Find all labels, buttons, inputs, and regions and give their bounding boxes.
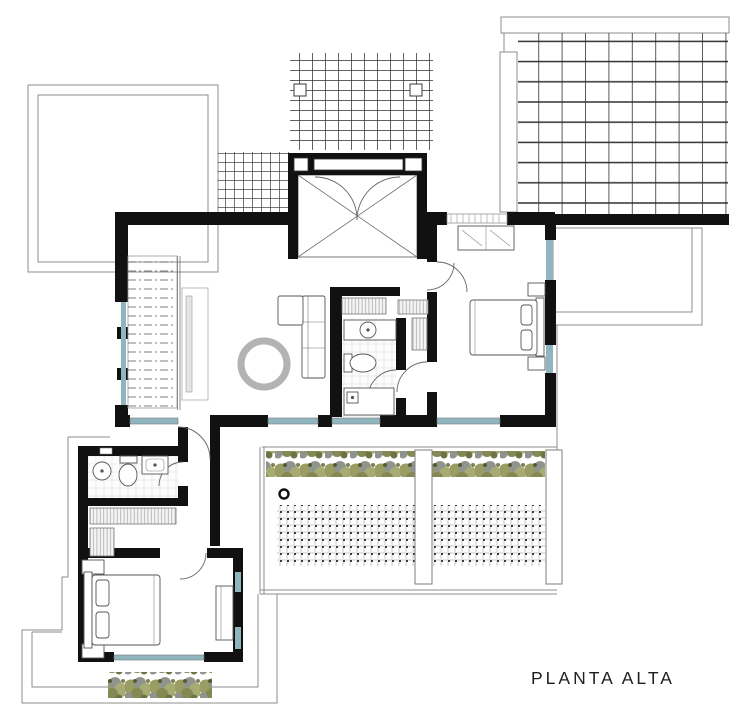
stair-outline [128, 256, 177, 408]
stairs [128, 256, 208, 410]
stair-cabinet-shelf [186, 296, 192, 392]
roof-column-strip [500, 52, 517, 212]
wall-west-bottom [115, 405, 128, 427]
deck-panel-right [433, 505, 545, 566]
bed2-pillow-2 [96, 612, 109, 638]
toilet1-bowl [350, 354, 376, 372]
nightstand-2 [528, 357, 545, 370]
floor-plan-svg: PLANTA ALTA [0, 0, 752, 720]
stair-treads [128, 262, 176, 406]
stair-railing [178, 256, 181, 410]
closet-wing-a [90, 508, 176, 524]
window-south-west [130, 418, 178, 424]
pergola-grid-large [518, 33, 728, 215]
roof-beam-top-right [501, 17, 729, 33]
wall-corridor-left [178, 427, 188, 446]
wall-north-mid2 [507, 212, 555, 225]
wall-north-right [555, 214, 729, 225]
window-west-stair [121, 302, 126, 405]
closet-hall-top [342, 298, 386, 314]
shower-drain [351, 396, 353, 398]
pergola-grid-left [218, 152, 290, 213]
terrace-right-outer [553, 228, 702, 325]
window-wing-east-2 [235, 627, 241, 649]
window-east-1 [546, 240, 553, 280]
wall-east-1 [545, 225, 556, 240]
wing-bedroom-furniture [82, 560, 233, 658]
bed-pillow-1 [521, 305, 532, 325]
wall-master-west-a [427, 225, 437, 262]
wall-north-mid [427, 212, 447, 225]
bed2-pillow-1 [96, 580, 109, 606]
wall-corridor-right [210, 427, 220, 546]
closet-dressing-a [398, 300, 428, 314]
window-wing-east-1 [235, 572, 241, 592]
bath1-sink-drain [367, 329, 369, 331]
box-window-3 [405, 158, 422, 171]
sofa-long-arm [302, 296, 325, 378]
terrace-right-inner [553, 228, 692, 312]
wall-south-2 [318, 415, 332, 427]
bath2-basin-drain [154, 464, 156, 466]
bath2-sink-drain [101, 470, 103, 472]
hedge-strip-south-right [432, 451, 545, 477]
box-window-1 [294, 158, 308, 171]
terrace-pillar-right [546, 450, 562, 584]
bed-pillow-2 [521, 330, 532, 350]
wall-bath2-south [88, 498, 188, 506]
closet-wing-b [90, 528, 114, 556]
terrace-pillar-left [415, 450, 432, 584]
deck-panel-left [277, 505, 415, 566]
door-stair-hall [427, 263, 454, 290]
terrace-bottom-edge [260, 590, 557, 594]
master-bedroom-furniture [458, 226, 545, 370]
wall-north-left [115, 212, 290, 225]
terrace-left-edge [260, 447, 264, 594]
toilet2-bowl [119, 464, 137, 486]
window-east-2 [546, 345, 553, 373]
bed2-headboard [84, 572, 92, 648]
wall-bath1-east-a [396, 318, 406, 370]
sofa-chaise [278, 296, 303, 325]
hedge-strip-bottom [108, 672, 212, 698]
north-louver-window [447, 214, 507, 223]
box-window-2 [314, 159, 403, 170]
wall-east-2 [545, 280, 556, 345]
wall-south-1 [210, 415, 268, 427]
wall-bath1-west [330, 287, 342, 417]
pergola-post-left [294, 84, 306, 96]
door-wing-bedroom [180, 553, 206, 579]
floor-plan-page: PLANTA ALTA [0, 0, 752, 720]
pergola-post-right [410, 84, 422, 96]
wardrobe [216, 586, 233, 640]
wall-bath2-east-a [178, 446, 188, 462]
pergola-grid-top [290, 53, 433, 150]
wall-master-west-b [427, 292, 437, 362]
wall-bath1-east-b [396, 398, 406, 417]
wall-master-west-c [427, 392, 437, 415]
window-wing-north [100, 448, 112, 454]
living-furniture [241, 296, 325, 387]
wall-bath2-east-b [178, 486, 188, 506]
wall-south-4 [500, 415, 556, 427]
plan-title-label: PLANTA ALTA [531, 668, 675, 688]
door-master-bedroom [437, 262, 467, 292]
window-south-2 [332, 418, 380, 424]
hedge-strip-south-left [266, 451, 416, 477]
window-wing-south [114, 655, 204, 660]
wall-south-3 [380, 415, 437, 427]
closet-dressing-b [412, 318, 427, 350]
toilet2-tank [120, 456, 137, 463]
wall-wing-south-b [204, 652, 243, 662]
round-rug [241, 341, 287, 387]
window-south-3 [437, 418, 500, 424]
wall-west-top [115, 212, 128, 302]
window-south-1 [268, 418, 318, 424]
drain-symbol [280, 490, 289, 499]
nightstand-1 [528, 283, 545, 296]
wall-bath1-north [330, 287, 400, 296]
